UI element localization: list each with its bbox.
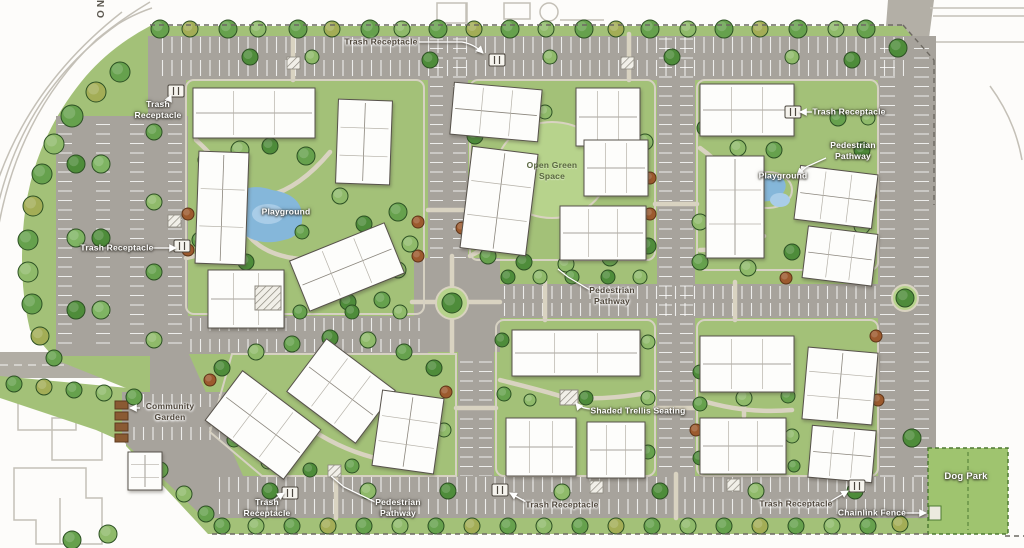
street-name-partial: NO <box>94 0 105 44</box>
site-plan: NO Trash Receptacle Trash Receptacle Tra… <box>0 0 1024 548</box>
site-plan-canvas <box>0 0 1024 548</box>
shaded-trellis-icon <box>560 390 578 405</box>
trellis-icon <box>255 286 281 310</box>
dog-park-area <box>928 448 1008 534</box>
